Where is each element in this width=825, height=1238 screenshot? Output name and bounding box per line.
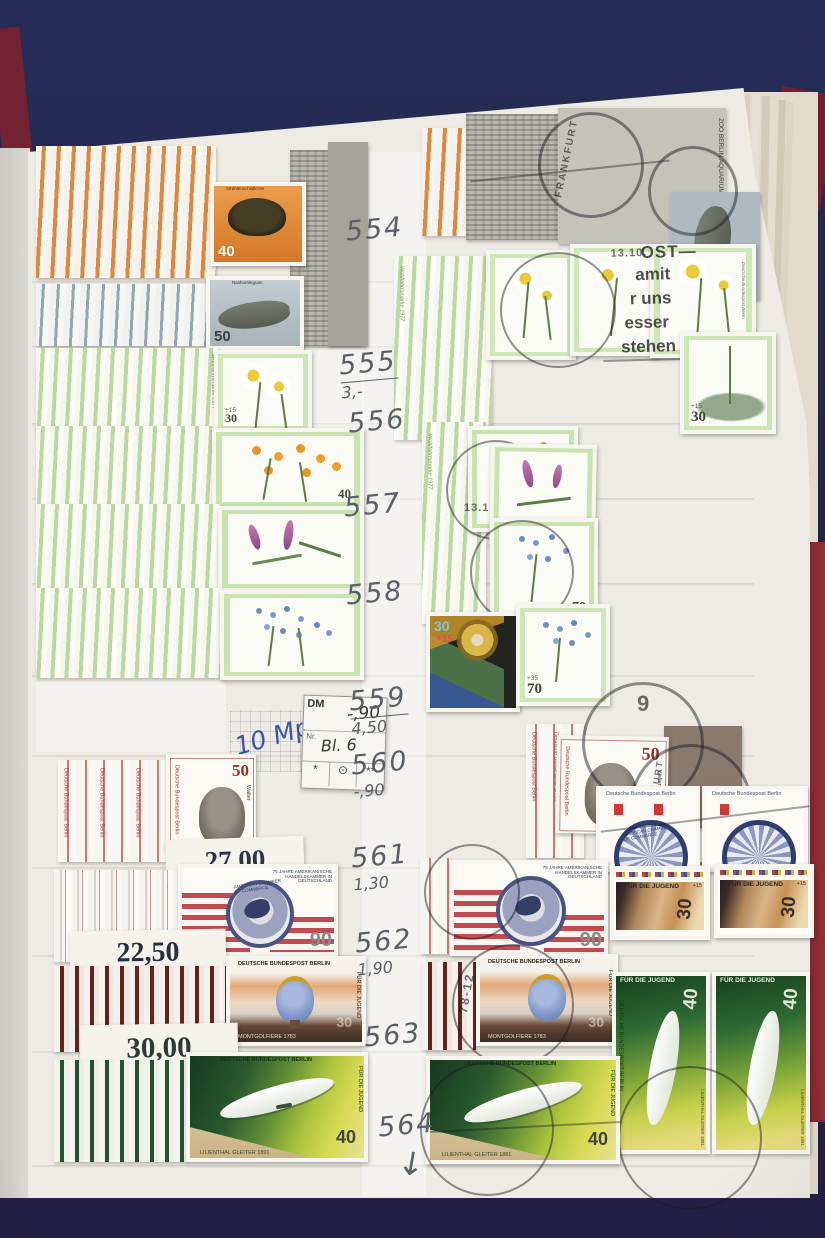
vetch-leaf — [299, 541, 342, 557]
empty-pocket — [36, 682, 226, 752]
postmark-circle — [424, 844, 520, 940]
catalog-annotation: 560 -,90 — [350, 748, 412, 801]
flower-stem — [262, 458, 271, 500]
stamp-country: DEUTSCHE BUNDESP — [510, 624, 516, 682]
stamp-title: Strahlenschildkröte — [226, 187, 264, 192]
label-symbol: * — [301, 762, 329, 787]
left-page-edge — [0, 148, 30, 1198]
turtle-stamp-stack — [36, 146, 216, 278]
eagle-icon — [242, 897, 272, 921]
stamp-script-text: Deutsche Bundespost Berlin — [98, 768, 104, 837]
balloon-basket — [290, 1020, 300, 1028]
glider-stamp-mint: DEUTSCHE BUNDESPOST BERLIN FÜR DIE JUGEN… — [186, 1052, 368, 1162]
catalog-annotation: 564 — [377, 1110, 437, 1142]
catalog-number: 556 — [347, 406, 407, 438]
daisy-stamp-used-30: +15 30 — [680, 332, 776, 434]
stamp-value: 30 — [336, 1014, 352, 1030]
stamp-surcharge: +15 — [693, 884, 702, 890]
stamp-script-text: Deutsche Bundespost Berlin — [530, 732, 536, 801]
used-stamp-sliver — [422, 128, 470, 236]
vetch-flower — [551, 464, 563, 489]
iguana-stamp-stack — [36, 284, 208, 346]
stamp-script-text: Wohlfahrtsmarke 1977 — [398, 266, 404, 321]
stamp-album-photo: Strahlenschildkröte 40 Nashornleguan 50 … — [0, 0, 825, 1238]
stamp-title: MONTGOLFIERE 1783 — [238, 1035, 296, 1041]
daisy-used-stack: Wohlfahrtsmarke 1977 — [394, 256, 492, 440]
walter-stamp-stack: Deutsche Bundespost Berlin Deutsche Bund… — [58, 760, 170, 862]
stamp-country-script: Deutsche Bundespost Berlin — [606, 792, 675, 798]
stamp-script-text: Deutsche Bundespost Berlin — [562, 746, 569, 815]
daisy-stamp-mint: +15 30 — [214, 350, 312, 434]
catalog-number: 563 — [363, 1020, 423, 1052]
catalog-number: 558 — [345, 578, 405, 610]
stamp-series: FÜR DIE JUGEND — [728, 882, 783, 889]
currency-label: DM — [307, 698, 325, 711]
balloon-stamp-mint: DEUTSCHE BUNDESPOST BERLIN FÜR DIE JUGEN… — [226, 956, 366, 1046]
catalog-annotation: 556 — [347, 406, 407, 438]
vetch-flower — [246, 523, 263, 551]
vetch-stamp-stack — [36, 504, 220, 588]
sheet-margin-dots — [616, 872, 704, 877]
postmark-city: FRANKFURT — [553, 118, 580, 198]
catalog-annotation: 554 — [345, 214, 405, 251]
catalog-number: 562 — [354, 926, 414, 958]
stamp-script-text: Deutsche Bundespost Berlin — [62, 768, 68, 837]
flower-stem — [555, 638, 561, 682]
stamp-value: 30 — [778, 896, 802, 919]
turtle-stamp: Strahlenschildkröte 40 — [210, 182, 306, 266]
postmark-digit: 9 — [637, 691, 651, 717]
handwritten-arrow: ↓ — [395, 1146, 427, 1182]
flower-stem — [298, 628, 305, 666]
catalog-number: 564 — [377, 1110, 437, 1142]
forgetmenot-flower — [256, 608, 262, 614]
jugend-30-pair: FÜR DIE JUGEND +15 30 — [714, 864, 814, 938]
stamp-title: LILIENTHAL GLEITER 1891 — [800, 1089, 805, 1146]
flower-stem — [299, 462, 307, 502]
red-mark — [654, 804, 663, 815]
postmark-circle — [500, 252, 616, 368]
stamp-value: 70 — [527, 681, 542, 698]
stamp-value: 30 — [691, 409, 706, 426]
daisy-stamp-stack: Wohlfahrtsmarke 1977 — [36, 348, 218, 432]
stamp-series: FÜR DIE JUGEND — [720, 978, 775, 985]
vetch-leaf — [252, 554, 302, 566]
chamber-seal-stamp-used: Deutsche Bundespost Berlin — [702, 786, 808, 872]
catalog-annotation: 558 — [345, 578, 405, 610]
stamp-script-text: Wohlfahrtsmarke 1977 — [426, 434, 432, 489]
jugend-30-pair: FÜR DIE JUGEND +15 30 — [610, 866, 710, 940]
stamp-series: FÜR DIE JUGEND — [624, 884, 679, 891]
forgetmenot-flower — [543, 622, 549, 628]
catalog-number: 559 — [348, 684, 408, 716]
catalog-number: 561 — [350, 841, 410, 873]
stamp-surcharge: +15 — [797, 882, 806, 888]
stamp-value: 40 — [680, 988, 704, 1011]
eagle-seal: AMERICAN CHAMBER OF COMMERCE — [226, 880, 294, 948]
flower-stem — [281, 394, 288, 430]
stamp-value: 50 — [232, 761, 249, 781]
album-spine-red — [0, 27, 33, 157]
slogan-line: esser — [624, 312, 669, 333]
vetch-leaf — [517, 497, 571, 507]
stamp-value: 30 — [588, 1014, 604, 1030]
blue-seal — [722, 820, 796, 868]
buttercup-stamp-stack — [36, 426, 216, 506]
slogan-line: OST— — [640, 242, 696, 263]
stamp-name: Walter — [245, 785, 251, 801]
postmark-circle: 78-12 — [452, 944, 574, 1066]
catalog-annotation: 557 — [343, 490, 403, 522]
stamp-country-script: Deutsche Bundespost Berlin — [712, 792, 781, 798]
stamp-value: 90 — [310, 929, 332, 952]
portrait-illustration — [199, 787, 245, 845]
stamp-value: 40 — [218, 243, 235, 260]
stamp-value: 30 — [225, 411, 237, 426]
stamp-value: 40 — [588, 1129, 608, 1150]
stamp-script-text: Deutsche Bundespost Berlin — [173, 765, 179, 834]
slogan-line: r uns — [630, 288, 672, 309]
stamp-title: LILIENTHAL GLEITER 1891 — [200, 1151, 270, 1157]
stamp-value: 30 — [434, 618, 450, 634]
catalog-number: 554 — [345, 214, 405, 246]
slogan-line: stehen — [621, 336, 676, 357]
red-mark — [720, 804, 729, 815]
buttercup-flower — [252, 446, 261, 455]
buttercup-stamp-mint: 40 — [212, 428, 364, 510]
catalog-annotation: 563 — [363, 1020, 423, 1052]
flower-stem — [255, 382, 262, 428]
stamp-series: FÜR DIE JUGEND — [357, 1066, 363, 1112]
stamp-series: FÜR DIE JUGEND — [609, 1070, 615, 1116]
christmas-stamp: 30 +15 DEUTSCHE BUNDESP — [426, 612, 520, 712]
stamp-value: 50 — [214, 328, 231, 345]
catalog-annotation: 555 3,- — [338, 348, 400, 402]
stamp-surcharge: +15 — [436, 634, 453, 645]
postmark-code: 78-12 — [456, 972, 477, 1015]
stamp-script-text: Deutsche Bundespost Berlin — [134, 768, 140, 837]
vetch-flower — [520, 459, 535, 488]
slogan-line: amit — [635, 264, 670, 285]
iguana-stamp: Nashornleguan 50 — [206, 276, 304, 350]
catalog-annotation: 559 4,50 — [348, 684, 410, 738]
flower-stem — [268, 626, 275, 666]
flower-stem — [729, 346, 731, 404]
stamp-series: FÜR DIE JUGEND — [620, 978, 675, 985]
stamp-value: 40 — [336, 1127, 356, 1148]
catalog-annotation: 561 1,30 — [350, 841, 412, 894]
postmark-circle — [618, 1066, 762, 1210]
catalog-number: 557 — [343, 490, 403, 522]
catalog-number: 555 — [338, 348, 398, 380]
stamp-value: 90 — [580, 929, 602, 952]
vetch-stamp-mint — [218, 506, 364, 592]
balloon-illustration — [276, 976, 314, 1023]
stamp-value: 40 — [780, 988, 804, 1011]
sheet-margin-dots — [720, 870, 808, 875]
vetch-flower — [282, 520, 295, 551]
forgetmenot-stamp-stack — [36, 588, 222, 678]
forgetmenot-stamp-mint — [220, 590, 364, 680]
stamp-country: DEUTSCHE BUNDESPOST BERLIN — [238, 962, 330, 968]
glider-stamp-stack — [54, 1060, 188, 1162]
stamp-country: DEUTSCHE BUNDESPOST BERLIN — [220, 1058, 312, 1064]
turtle-illustration — [228, 198, 286, 236]
iguana-illustration — [217, 298, 291, 331]
forgetmenot-stamp-70: +35 70 — [516, 604, 610, 706]
seal-text: AMERICAN CHAMBER OF COMMERCE — [234, 879, 285, 895]
stamp-value: 30 — [674, 898, 698, 921]
price-tag-text: 22,50 — [116, 936, 180, 969]
stamp-title: Nashornleguan — [232, 281, 263, 286]
catalog-number: 560 — [350, 748, 410, 780]
glider-wing — [217, 1070, 337, 1126]
nr-label: Nr. — [306, 732, 317, 741]
catalog-annotation: 562 1,90 — [354, 926, 416, 979]
stamp-header: 75 JAHRE AMERIKANISCHE HANDELSKAMMER IN … — [542, 866, 602, 880]
red-mark — [614, 804, 623, 815]
